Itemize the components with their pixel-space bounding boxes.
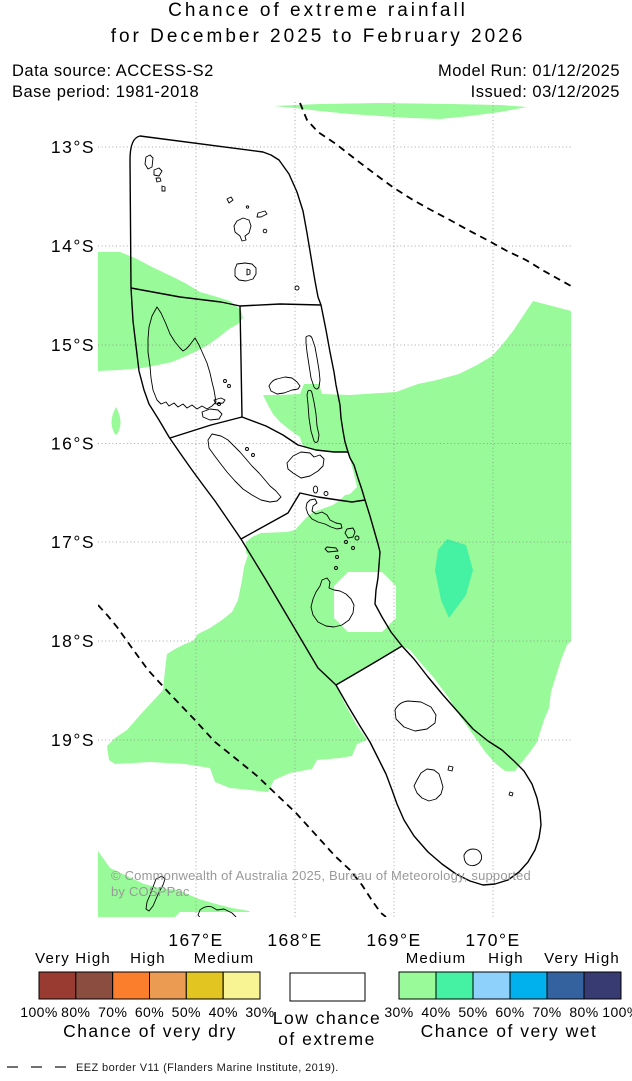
svg-text:60%: 60%	[495, 1004, 524, 1020]
svg-text:Medium: Medium	[194, 950, 255, 967]
svg-text:60%: 60%	[135, 1004, 164, 1020]
svg-text:© Commonwealth of Australia 20: © Commonwealth of Australia 2025, Bureau…	[111, 868, 531, 883]
svg-text:13°S: 13°S	[51, 137, 95, 157]
svg-text:15°S: 15°S	[51, 335, 95, 355]
svg-text:80%: 80%	[61, 1004, 90, 1020]
svg-text:Low chance: Low chance	[273, 1008, 381, 1028]
svg-text:by COSPPac: by COSPPac	[111, 884, 190, 899]
svg-text:Chance of very dry: Chance of very dry	[63, 1021, 237, 1041]
svg-text:Medium: Medium	[406, 950, 467, 967]
svg-text:40%: 40%	[421, 1004, 450, 1020]
svg-text:for December 2025 to February: for December 2025 to February 2026	[111, 26, 526, 47]
svg-text:Base period: 1981-2018: Base period: 1981-2018	[12, 83, 199, 101]
svg-text:Very High: Very High	[544, 950, 620, 967]
svg-text:19°S: 19°S	[51, 730, 95, 750]
svg-text:30%: 30%	[245, 1004, 274, 1020]
svg-text:30%: 30%	[384, 1004, 413, 1020]
svg-text:Data source: ACCESS-S2: Data source: ACCESS-S2	[12, 62, 214, 80]
svg-text:18°S: 18°S	[51, 631, 95, 651]
svg-text:Very High: Very High	[35, 950, 111, 967]
svg-text:169°E: 169°E	[366, 930, 421, 950]
svg-text:100%: 100%	[20, 1004, 57, 1020]
svg-text:70%: 70%	[98, 1004, 127, 1020]
svg-text:Chance of extreme rainfall: Chance of extreme rainfall	[168, 0, 468, 21]
svg-text:167°E: 167°E	[168, 930, 223, 950]
svg-text:50%: 50%	[458, 1004, 487, 1020]
svg-text:16°S: 16°S	[51, 434, 95, 454]
svg-text:High: High	[488, 950, 524, 967]
svg-text:168°E: 168°E	[267, 930, 322, 950]
svg-text:17°S: 17°S	[51, 532, 95, 552]
svg-text:Model Run: 01/12/2025: Model Run: 01/12/2025	[438, 62, 620, 80]
svg-text:of extreme: of extreme	[278, 1029, 376, 1049]
svg-text:40%: 40%	[209, 1004, 238, 1020]
svg-text:Issued: 03/12/2025: Issued: 03/12/2025	[471, 83, 620, 101]
svg-text:70%: 70%	[532, 1004, 561, 1020]
svg-text:170°E: 170°E	[465, 930, 520, 950]
svg-text:80%: 80%	[569, 1004, 598, 1020]
svg-text:EEZ border V11 (Flanders Marin: EEZ border V11 (Flanders Marine Institut…	[76, 1062, 339, 1074]
svg-text:50%: 50%	[172, 1004, 201, 1020]
svg-text:Chance of very wet: Chance of very wet	[421, 1021, 598, 1041]
svg-text:High: High	[130, 950, 166, 967]
svg-text:100%: 100%	[602, 1004, 632, 1020]
svg-text:14°S: 14°S	[51, 236, 95, 256]
